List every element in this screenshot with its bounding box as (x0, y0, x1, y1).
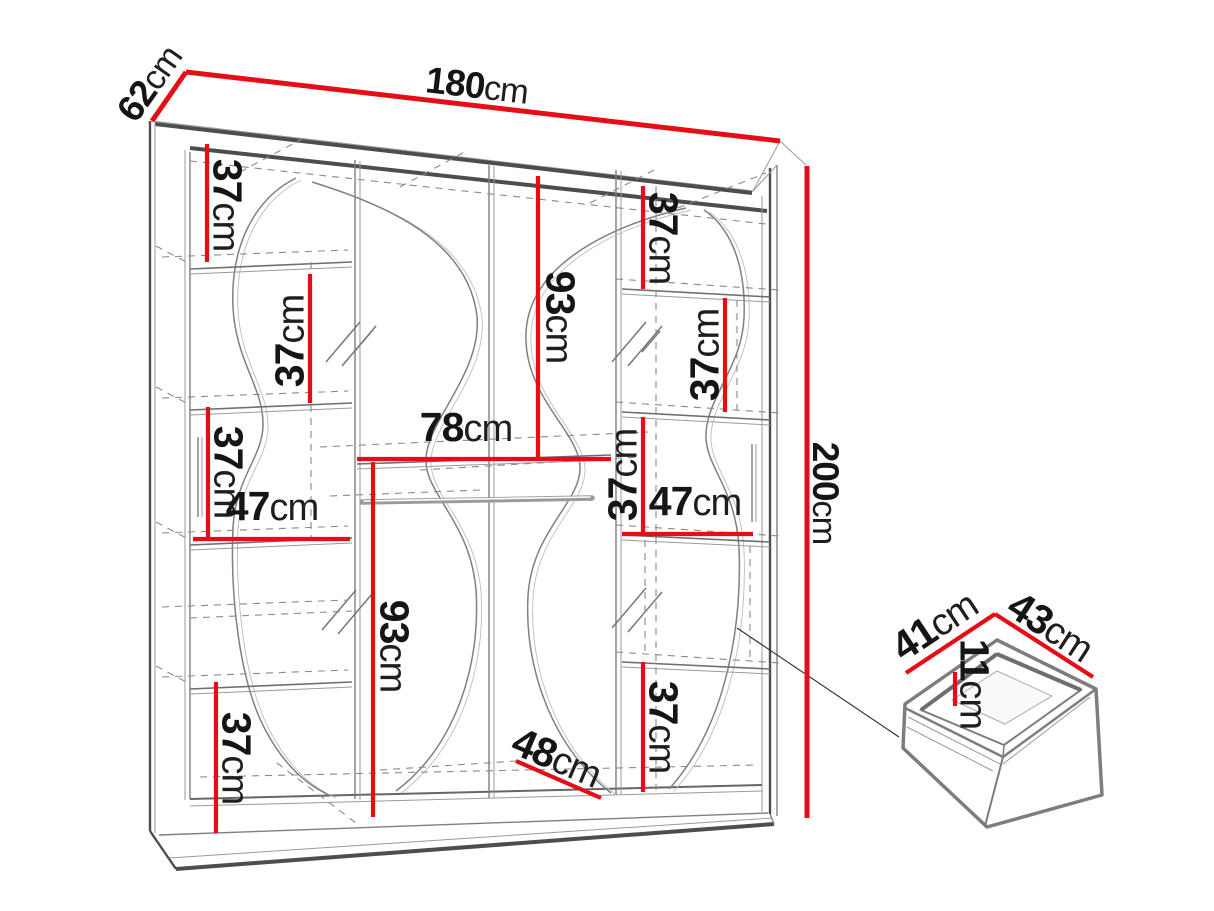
dimension-height: 200cm (805, 166, 846, 818)
drawer-pointer-line (737, 628, 899, 737)
dimension-label: 11cm (952, 639, 998, 729)
dimension-left-top-gap: 37cm (205, 144, 251, 262)
dimension-drawer-height: 11cm (952, 639, 998, 729)
dimension-label: 37cm (641, 681, 687, 773)
base-left-corner (150, 831, 176, 869)
wardrobe-top-right-edge (780, 141, 806, 165)
dimension-center-shelf-width: 78cm (357, 404, 611, 459)
dimension-label: 37cm (641, 192, 687, 284)
dimension-label: 43cm (1000, 582, 1103, 671)
dimension-center-upper-height: 93cm (538, 176, 584, 459)
dimension-depth: 62cm (109, 37, 190, 129)
dimension-width: 180cm (186, 59, 780, 141)
floor-front-edge (190, 785, 762, 799)
dimension-label: 37cm (205, 159, 251, 251)
dimension-right-bottom-gap: 37cm (641, 662, 687, 792)
dimension-right-upper-gap: 37cm (681, 298, 727, 412)
dimension-bottom-depth: 48cm (505, 718, 608, 798)
dimension-label: 47cm (649, 478, 741, 524)
right-door-handle (752, 444, 756, 522)
drawer-outline (903, 640, 1102, 827)
dimension-label: 37cm (266, 295, 312, 387)
drawer-drawing (903, 640, 1102, 827)
dimension-right-mid-gap: 37cm (599, 417, 645, 533)
dimension-label: 78cm (420, 404, 512, 450)
dimension-label: 37cm (214, 712, 260, 804)
dimension-label: 93cm (538, 271, 584, 363)
dimension-label: 48cm (505, 718, 608, 796)
door-frame-verticals (355, 160, 621, 800)
hanging-rail (362, 497, 592, 502)
drawer-front-panel-edge (985, 757, 1003, 826)
dimension-label: 47cm (226, 483, 318, 529)
dimension-left-bottom-gap: 37cm (214, 682, 260, 833)
drawer-front-corner (1003, 745, 1004, 757)
dimension-left-mid-gap: 37cm (266, 274, 312, 403)
dimension-label: 200cm (805, 442, 846, 545)
floor-front-edge2 (190, 791, 763, 806)
dimension-label: 93cm (372, 600, 418, 692)
dimension-label: 37cm (681, 309, 727, 401)
diagram-stage: 62cm 180cm 200cm 37cm 37cm 37cm 47 (0, 0, 1214, 911)
dimension-center-lower-height: 93cm (372, 462, 418, 817)
dimension-right-top-gap: 37cm (641, 186, 687, 289)
left-door-handle (198, 437, 202, 517)
dimension-label: 37cm (599, 429, 645, 521)
diagram-canvas: 62cm 180cm 200cm 37cm 37cm 37cm 47 (0, 0, 1214, 911)
dimension-drawer-width: 43cm (995, 582, 1102, 677)
